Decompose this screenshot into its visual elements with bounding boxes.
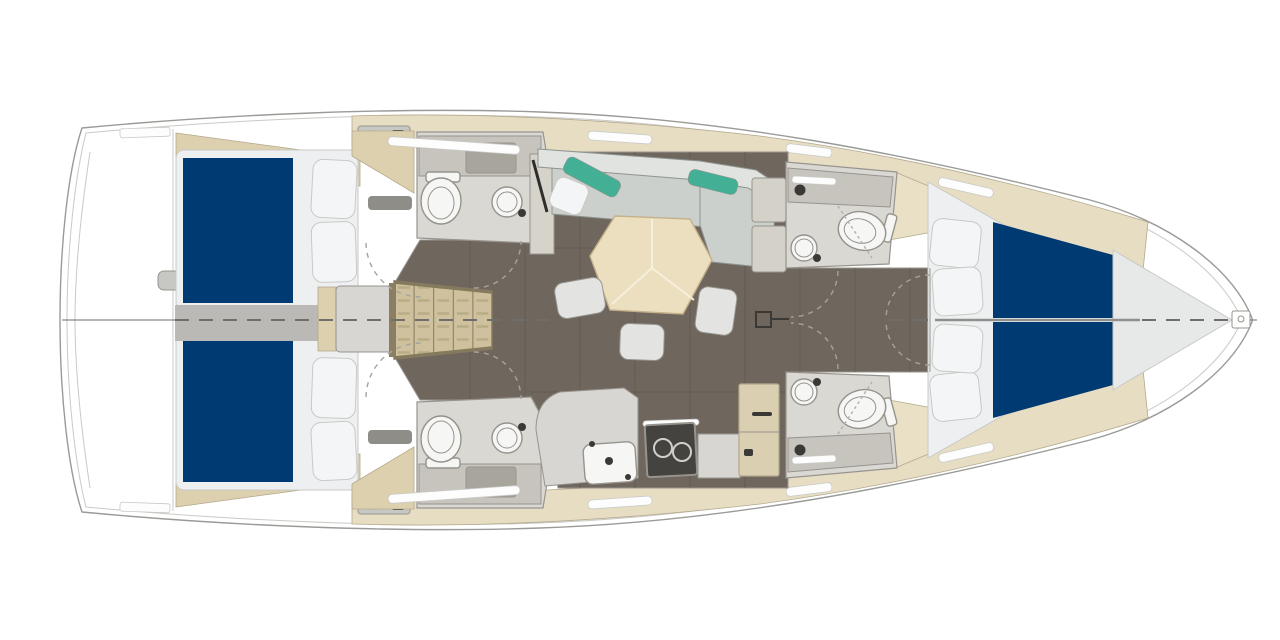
fwd-head-port-faucet <box>795 185 806 196</box>
stool-bottom <box>619 323 664 361</box>
fridge-cabinet <box>739 384 779 476</box>
pillow-aft-port-2 <box>311 221 357 282</box>
stern-step-bottom <box>120 502 170 513</box>
basin-fwd-port-tap <box>813 254 821 262</box>
pillow-fwd-port-1 <box>929 218 983 270</box>
galley-tap <box>589 441 595 447</box>
anchor-fitting <box>1232 311 1250 328</box>
pillow-aft-starboard-2 <box>311 357 357 418</box>
sideboard-fwd-upper <box>752 178 786 222</box>
basin-aft-starboard-tap <box>518 423 526 431</box>
galley-counter-right <box>698 434 740 478</box>
floor-plan-canvas <box>0 0 1280 640</box>
stool-right <box>694 286 738 337</box>
basin-aft-port-tap <box>518 209 526 217</box>
locker-slot-port <box>368 196 412 210</box>
aft-aisle <box>175 305 337 341</box>
fwd-head-starboard-faucet <box>795 445 806 456</box>
pillow-fwd-starboard-1 <box>929 371 983 423</box>
toilet-aft-port <box>421 178 461 224</box>
sideboard-fwd-lower <box>752 226 786 272</box>
galley-sink-drain <box>605 457 613 465</box>
galley-knob <box>625 474 631 480</box>
pillow-aft-starboard-1 <box>311 421 358 481</box>
stool-left <box>553 276 607 320</box>
basin-fwd-starboard-tap <box>813 378 821 386</box>
fridge-latch <box>744 449 753 456</box>
pillow-fwd-port-2 <box>931 266 983 316</box>
boat-floor-plan <box>0 0 1280 640</box>
fridge-handle <box>752 412 772 416</box>
berth-mattress-navy-starboard <box>183 337 293 482</box>
toilet-aft-starboard <box>421 416 461 462</box>
pillow-aft-port-1 <box>311 159 358 219</box>
pillow-fwd-starboard-2 <box>931 323 983 373</box>
locker-slot-starboard <box>368 430 412 444</box>
stern-step-top <box>120 127 170 138</box>
berth-mattress-navy-port <box>183 158 293 303</box>
